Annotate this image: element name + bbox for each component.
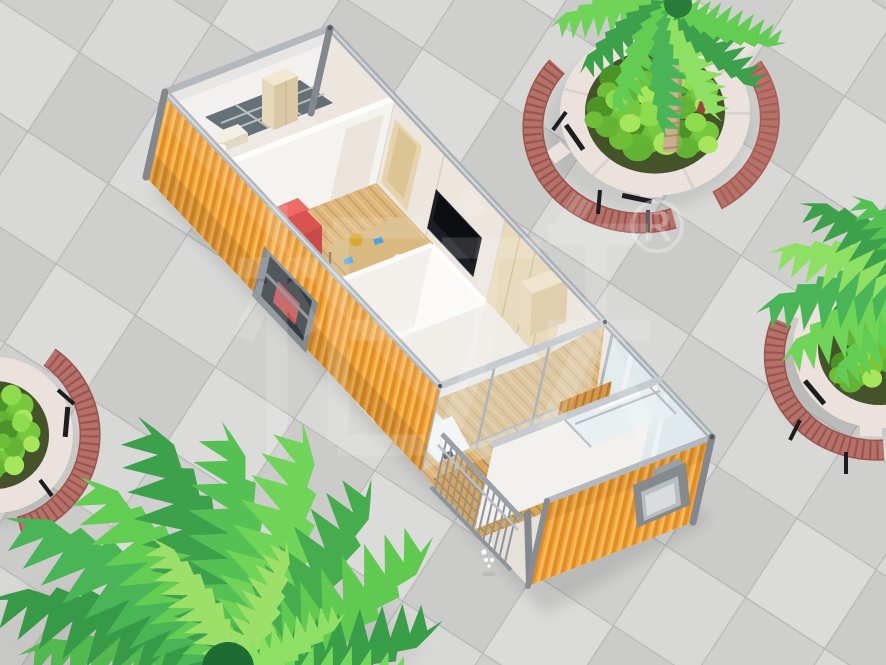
wardrobe (262, 68, 298, 130)
planter-left: Stone planter with shrubs at plaza edge (0, 369, 61, 501)
registered-mark: ® (620, 185, 694, 271)
render-stage: Bird's-eye 3D architectural rendering of… (0, 0, 886, 665)
